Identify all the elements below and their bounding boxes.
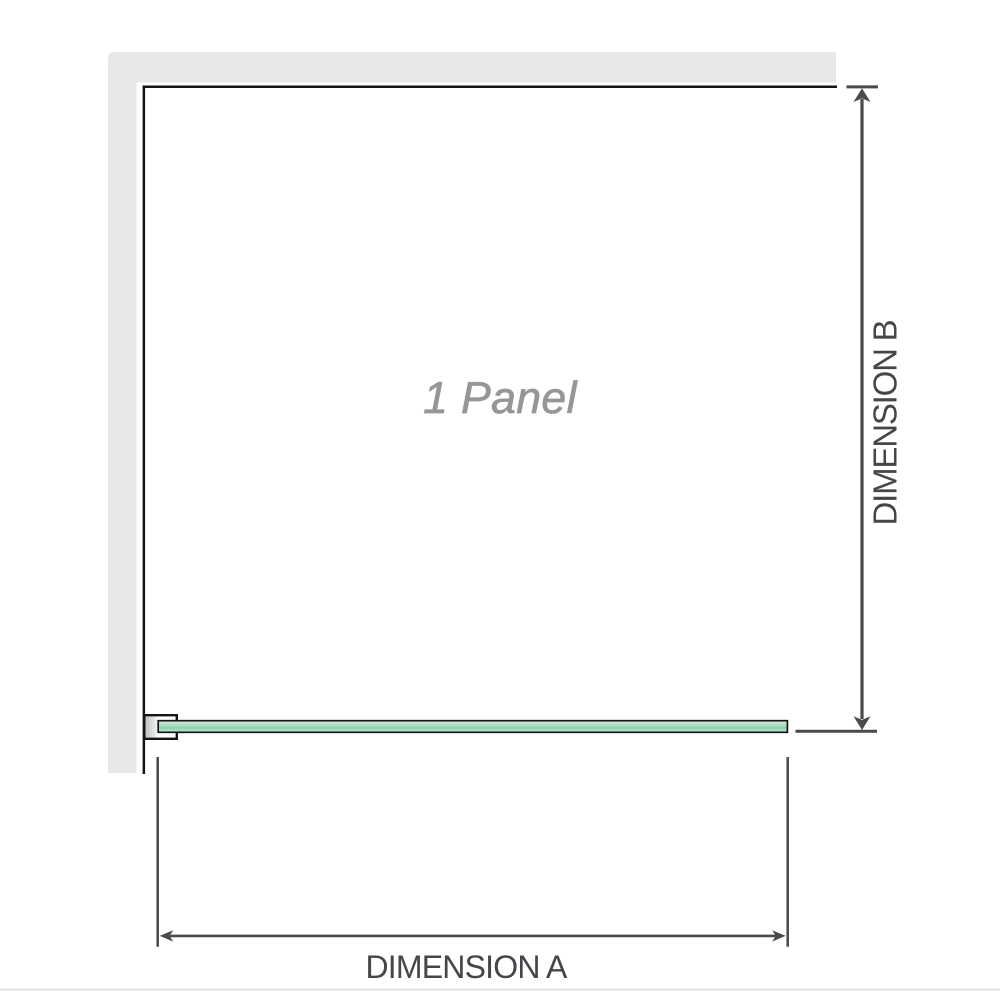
svg-text:DIMENSION A: DIMENSION A (365, 949, 567, 985)
svg-text:DIMENSION B: DIMENSION B (866, 320, 903, 525)
svg-text:1 Panel: 1 Panel (423, 374, 577, 423)
